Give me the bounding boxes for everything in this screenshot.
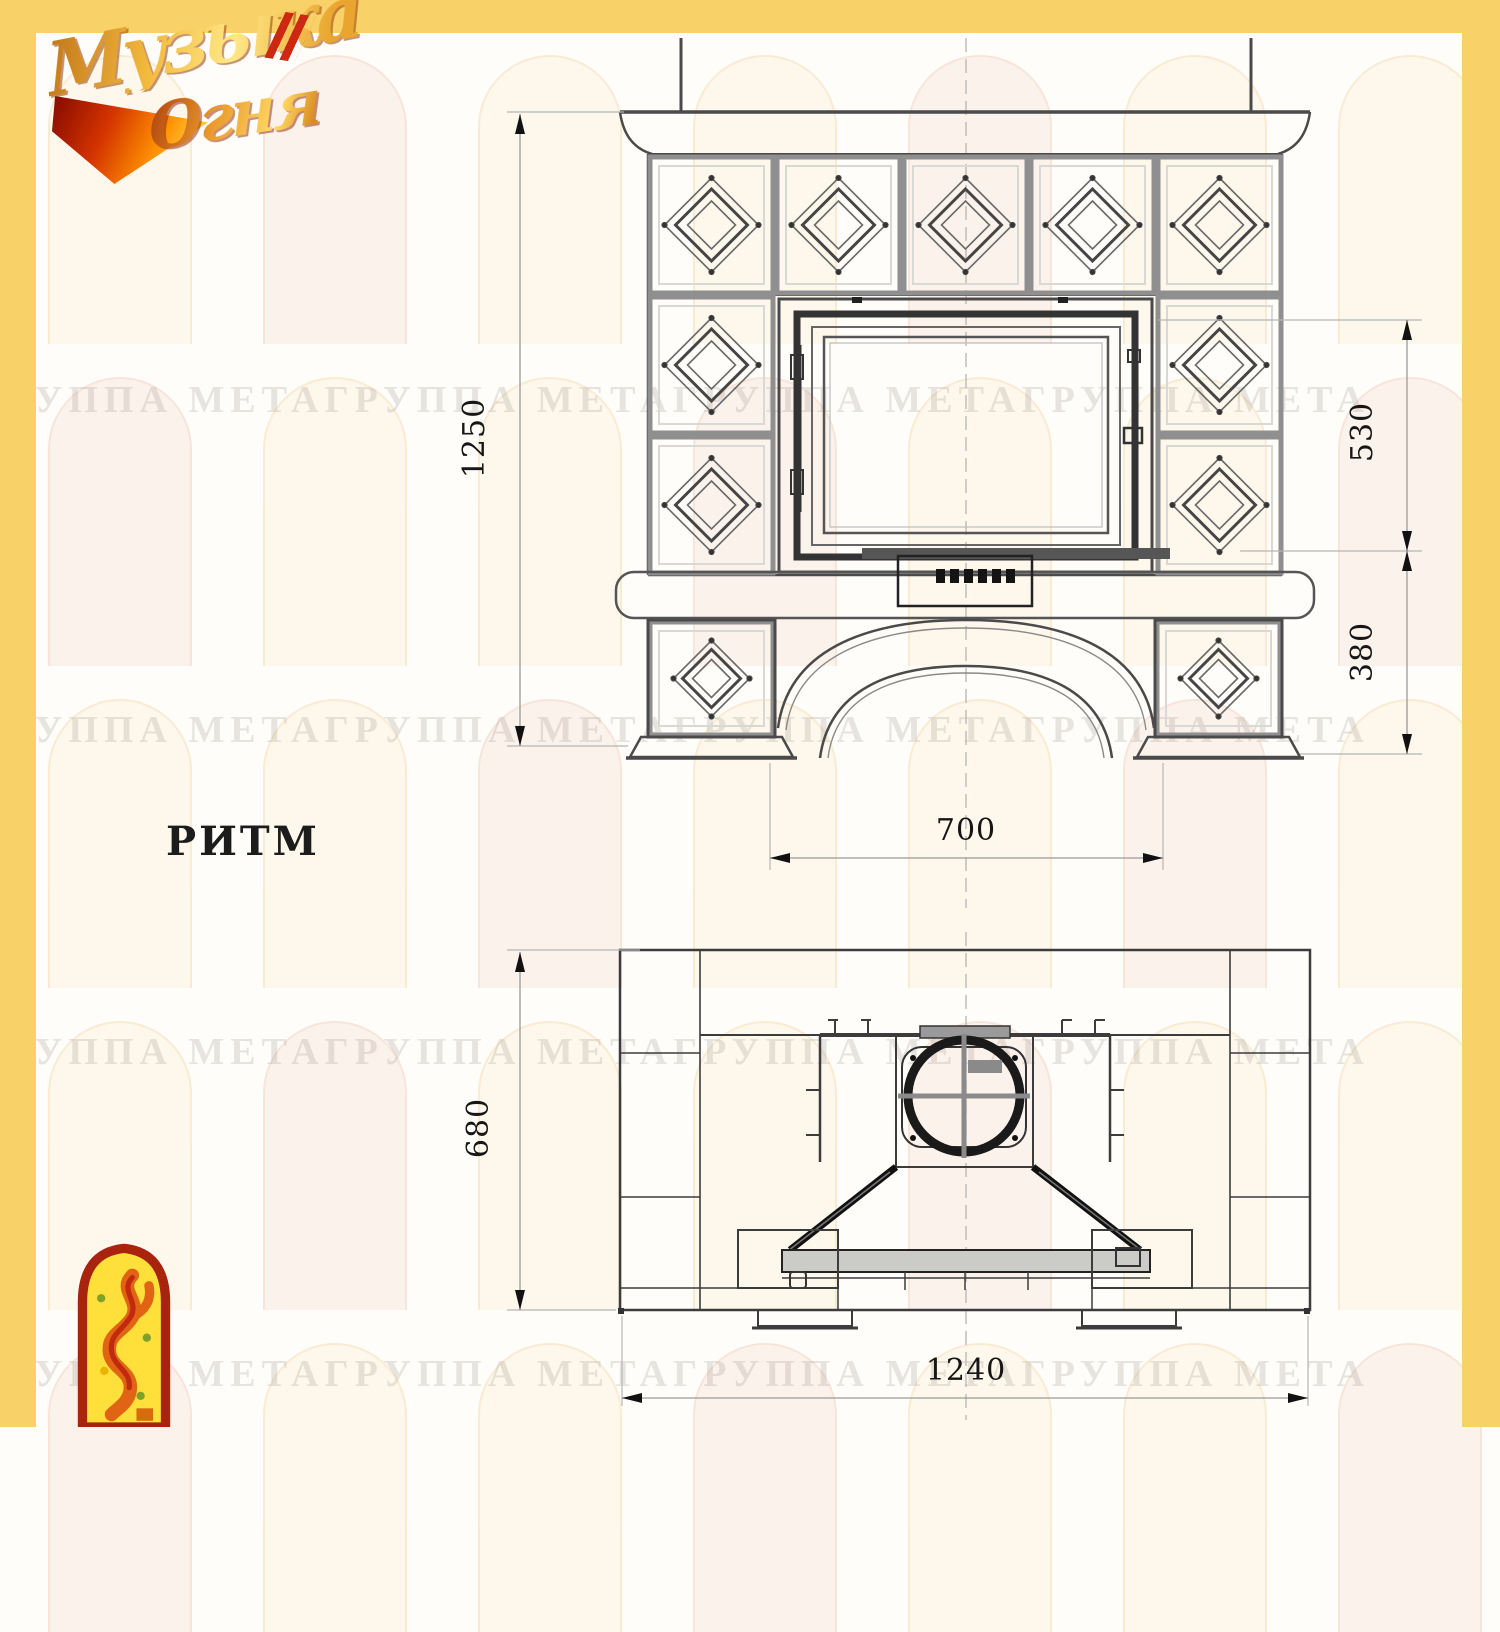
diamond-ornament (792, 178, 886, 272)
diamond-ornament (1046, 178, 1140, 272)
dimension-base-height: 380 (1300, 551, 1422, 754)
dim-front-height-label: 1250 (457, 398, 492, 478)
anchor-ticks (1062, 1020, 1105, 1035)
tile (1158, 297, 1281, 433)
tile (1157, 622, 1280, 735)
tile (650, 157, 773, 293)
dim-firebox-height-label: 530 (1345, 402, 1380, 462)
model-name-label: РИТМ (166, 818, 320, 865)
technical-drawing: 1250 530 380 700 (0, 0, 1500, 1427)
grille-slit (992, 569, 1001, 583)
diamond-ornament (665, 318, 759, 412)
diamond-ornament (815, 201, 863, 249)
tile (650, 437, 773, 573)
tile (650, 297, 773, 433)
diamond-ornament (676, 469, 748, 541)
diamond-ornament (688, 201, 736, 249)
diamond-ornament (1196, 341, 1244, 389)
diamond-ornament (1190, 650, 1248, 708)
diamond-ornament (1196, 481, 1244, 529)
base-foot-tab (1082, 1310, 1176, 1326)
grille-slit (978, 569, 987, 583)
diamond-ornament (683, 650, 741, 708)
door-frame (797, 314, 1135, 557)
base-foot-tab (758, 1310, 852, 1326)
diamond-ornament (665, 178, 759, 272)
tile (1158, 437, 1281, 573)
tile (904, 157, 1027, 293)
dim-plan-depth-label: 680 (461, 1098, 496, 1158)
diamond-ornament (1184, 469, 1256, 541)
diamond-ornament (1200, 660, 1238, 698)
flue-outlet (898, 1026, 1030, 1158)
front-view (616, 38, 1314, 908)
grille-slit (964, 569, 973, 583)
diamond-ornament (688, 481, 736, 529)
dimension-plan-depth: 680 (461, 950, 640, 1310)
diamond-ornament (693, 660, 731, 698)
diamond-ornament (674, 641, 750, 717)
dim-base-height-label: 380 (1345, 622, 1380, 682)
diamond-ornament (1057, 189, 1129, 261)
diamond-ornament (1173, 318, 1267, 412)
tile (1031, 157, 1154, 293)
anchor-ticks (828, 1020, 871, 1035)
dim-portal-width-label: 700 (936, 813, 996, 848)
leg-base (630, 737, 793, 757)
grille-slit (950, 569, 959, 583)
pivot-mark (852, 297, 862, 303)
diamond-ornament (1184, 329, 1256, 401)
plan-view (618, 932, 1310, 1420)
cornice (620, 112, 1310, 154)
diamond-ornament (803, 189, 875, 261)
flame-emblem-icon (72, 1238, 176, 1427)
tile (1158, 157, 1281, 293)
diamond-ornament (1069, 201, 1117, 249)
tile (650, 622, 773, 735)
insert-foot (790, 1272, 806, 1288)
diamond-ornament (688, 341, 736, 389)
tile (777, 157, 900, 293)
pivot-mark (1058, 297, 1068, 303)
diamond-ornament (1196, 201, 1244, 249)
diamond-ornament (1173, 458, 1267, 552)
dimension-plan-width: 1240 (622, 1316, 1308, 1406)
dimension-front-height: 1250 (457, 112, 628, 746)
diamond-ornament (676, 189, 748, 261)
brand-logo: Музыка Огня (28, 0, 328, 190)
diamond-ornament (676, 329, 748, 401)
dim-plan-width-label: 1240 (926, 1353, 1006, 1388)
diamond-ornament (1181, 641, 1257, 717)
leg-base (1137, 737, 1300, 757)
diamond-ornament (1173, 178, 1267, 272)
diamond-ornament (1184, 189, 1256, 261)
diamond-ornament (665, 458, 759, 552)
vent-grille (862, 548, 1170, 606)
grille-slit (936, 569, 945, 583)
grille-slit (1006, 569, 1015, 583)
